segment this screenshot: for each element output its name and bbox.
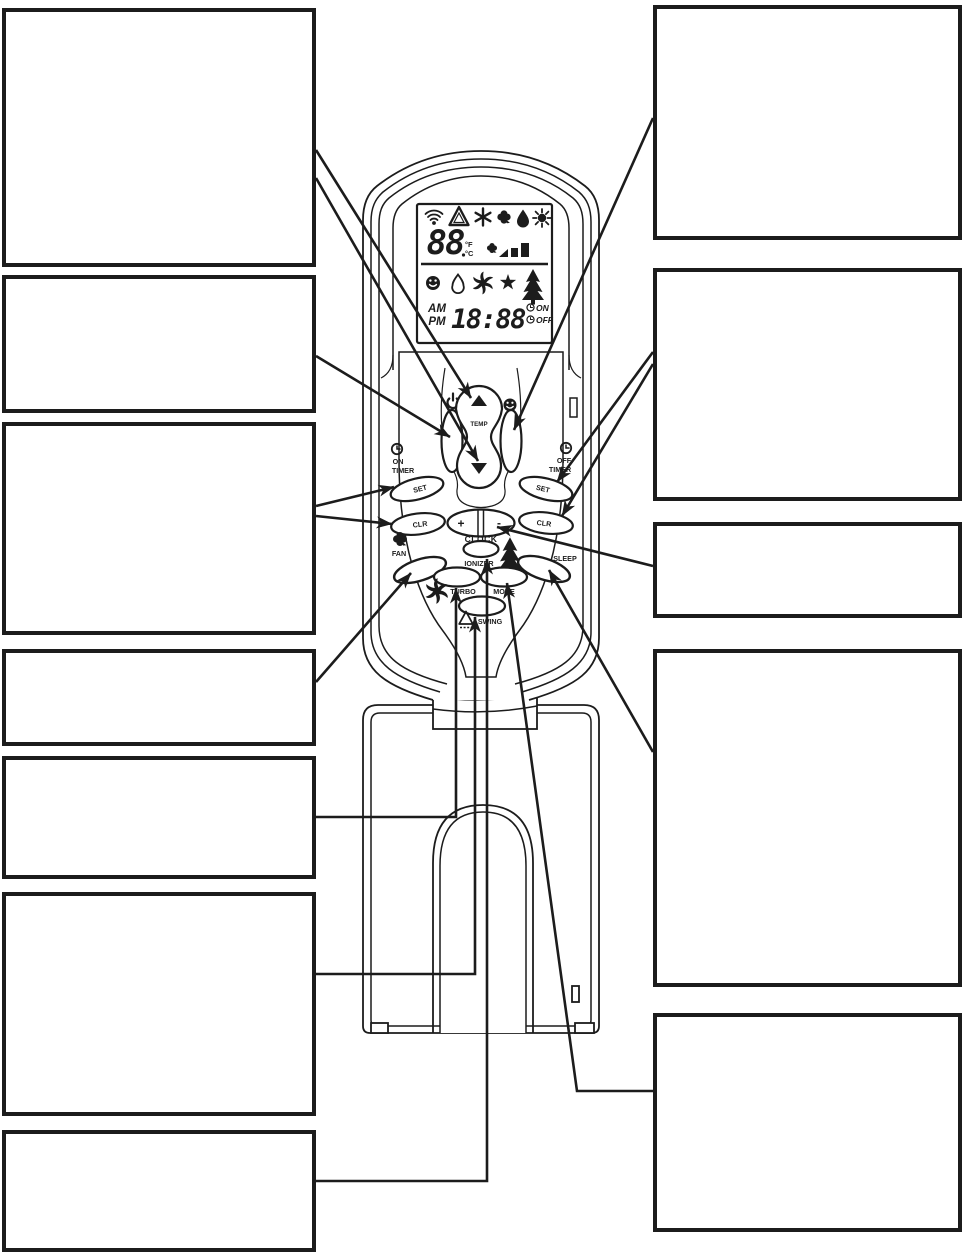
unit-celsius: °C [465,249,474,258]
clock-plus-label: + [457,517,464,531]
remote-holder [363,676,599,1033]
holder-foot-left [371,1023,388,1033]
holder-cutout [440,812,526,1033]
fan-label: FAN [392,549,406,558]
off-timer-clr-label: CLR [536,518,553,529]
comfort-smiley-icon [426,276,440,290]
on-timer-label-1: ON [393,457,404,466]
holder-slot [572,986,579,1002]
mode-label: MODE [493,587,515,596]
holder-foot-right [575,1023,594,1033]
turbo-label: TURBO [450,587,476,596]
side-button [570,398,577,417]
turbo-button [434,568,480,587]
heat-sun-icon [533,209,551,227]
swing-label: SWING [478,617,503,626]
unit-fahrenheit: °F [465,240,473,249]
timer-off-flag: OFF [536,315,554,325]
remote-control-figure: 88 °F °C AM PM 18:88 ON [0,0,965,1255]
time-readout: 18:88 [451,304,525,335]
ionizer-button [464,541,499,557]
on-timer-label-2: TIMER [392,466,415,475]
ionizer-label: IONIZER [464,559,494,568]
temperature-readout: 88 [427,223,464,263]
timer-on-flag: ON [536,303,550,313]
on-timer-clr-label: CLR [412,519,429,530]
temp-label: TEMP [470,421,487,428]
lcd-display: 88 °F °C AM PM 18:88 ON [417,204,554,343]
pm-indicator: PM [428,316,446,328]
am-indicator: AM [427,303,446,315]
manual-diagram-page: 88 °F °C AM PM 18:88 ON [0,0,965,1255]
